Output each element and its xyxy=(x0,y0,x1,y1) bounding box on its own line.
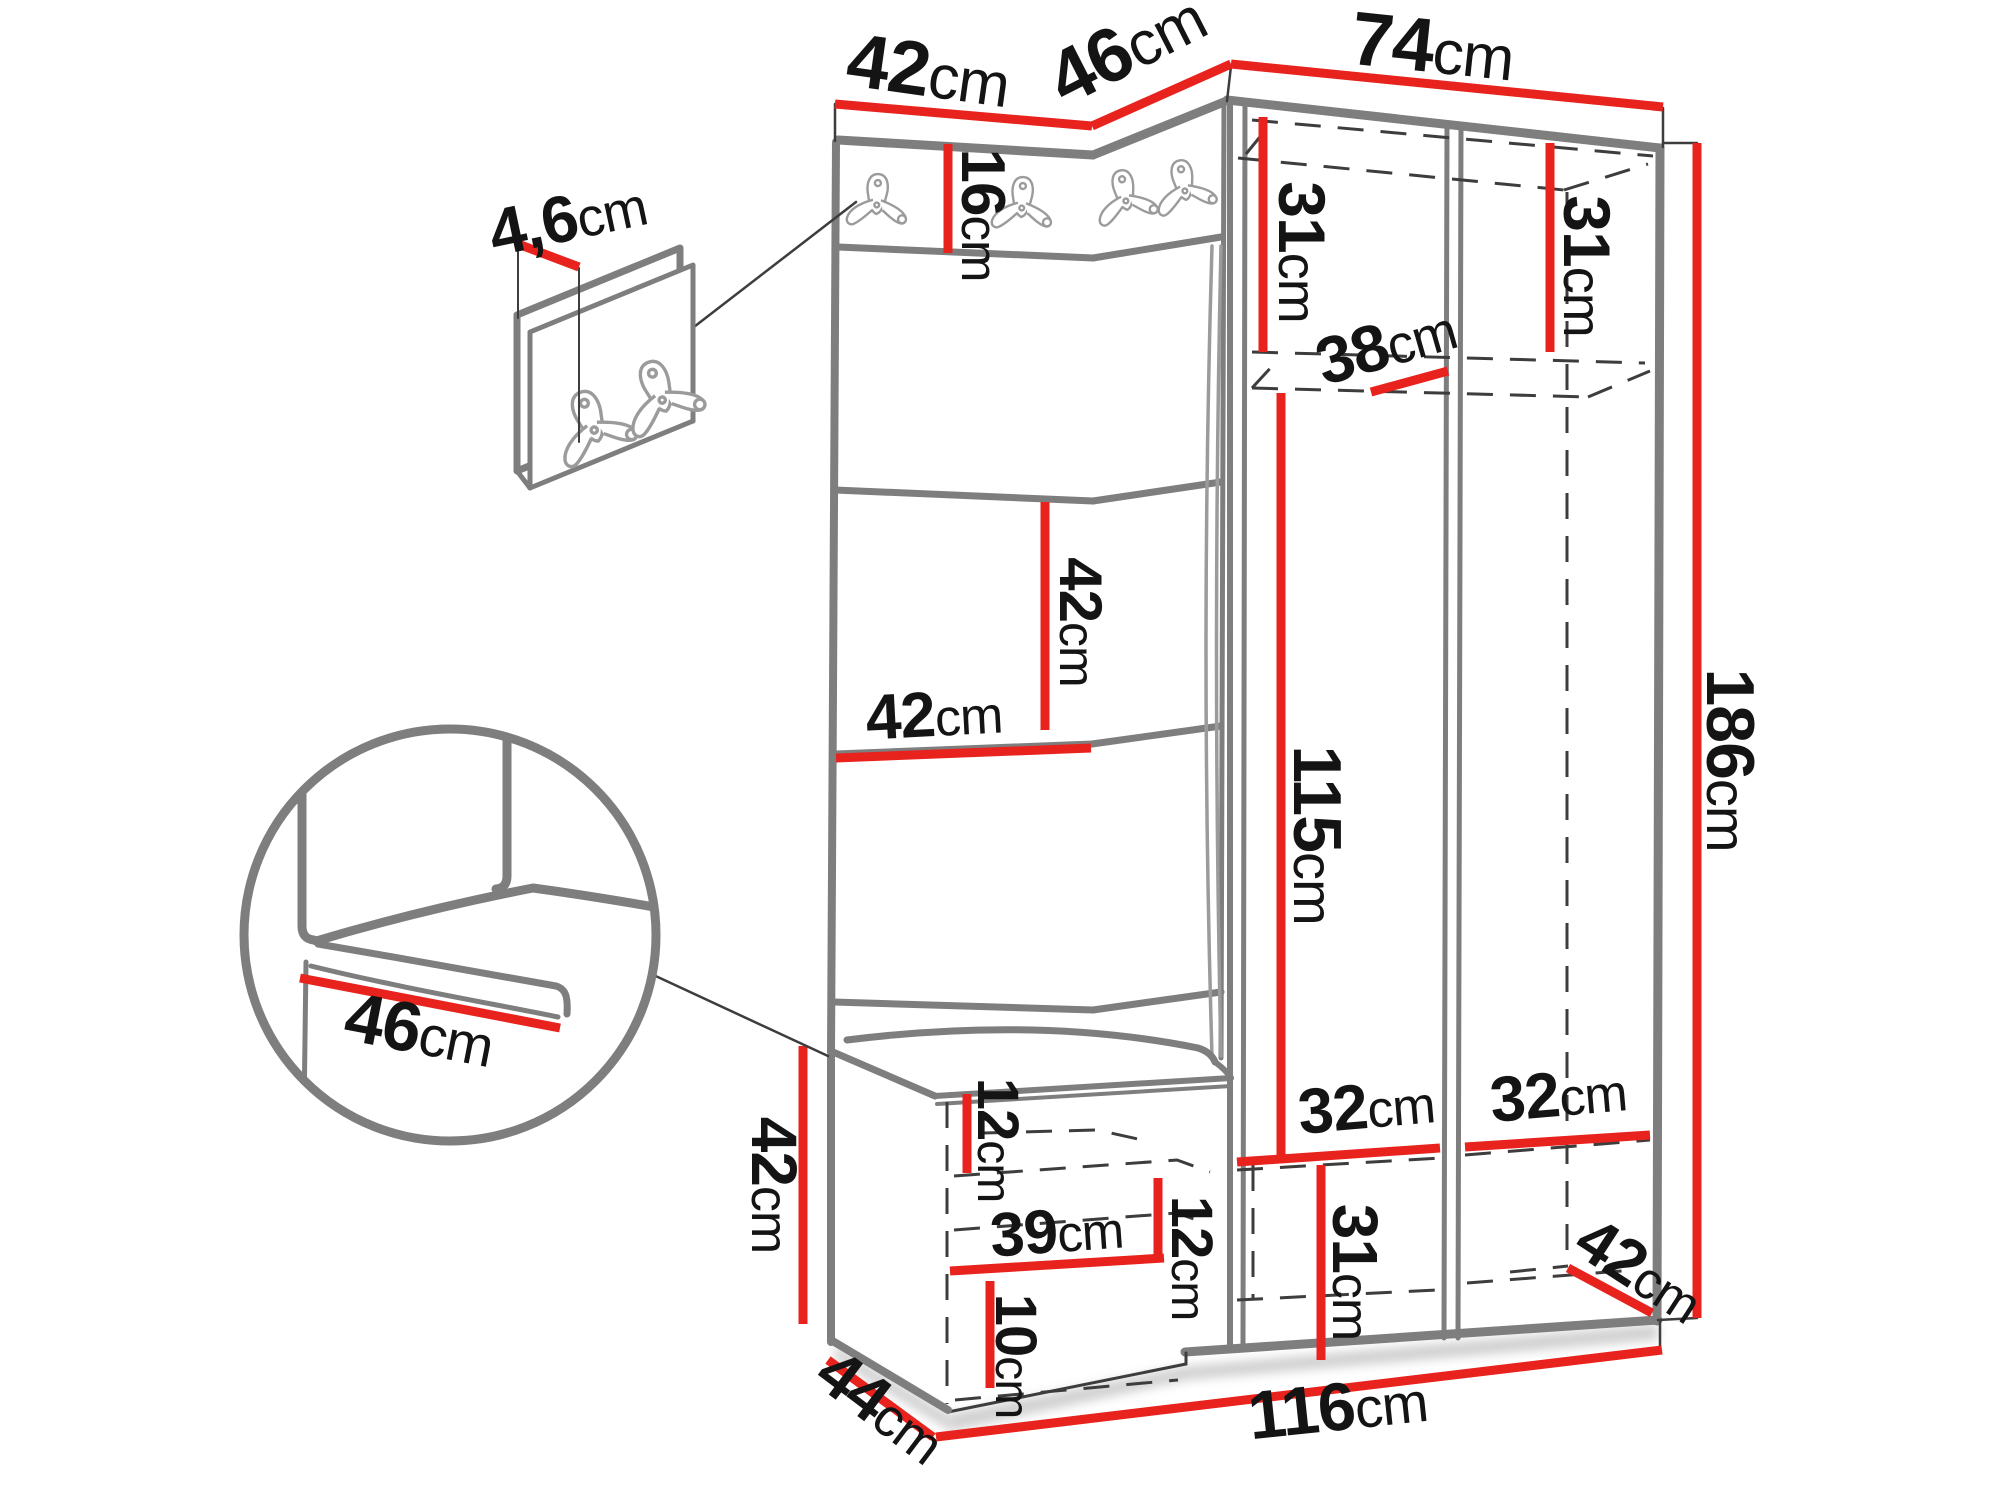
right-front-corner-edge xyxy=(1657,148,1660,1321)
dim-label-top-corner-width: 46cm xyxy=(1034,0,1218,122)
quilt-seam-3-left xyxy=(834,1002,1093,1010)
coat-hook-icon xyxy=(1151,155,1218,216)
dim-label-right-bay-top-height: 31cm xyxy=(1550,195,1624,336)
diagram-canvas: 46cm 42cm 46cm 74cm 4,6cm 16cm 31cm 31cm… xyxy=(0,0,2000,1500)
cushion-back-edge xyxy=(847,1030,1215,1062)
dim-label-panel-tile-height: 42cm xyxy=(1047,557,1114,686)
coat-hook-icon xyxy=(1092,165,1159,226)
dim-label-hook-strip-height: 16cm xyxy=(948,149,1017,282)
dim-line-right-bay-width xyxy=(1465,1135,1650,1147)
dim-label-right-bay-width: 32cm xyxy=(1487,1052,1629,1136)
corner-top-edge xyxy=(1093,102,1224,155)
coat-hook-icon xyxy=(847,173,909,228)
callout-line-seat-detail xyxy=(647,972,828,1056)
dim-label-bottom-section-height: 31cm xyxy=(1319,1204,1391,1341)
quilt-seam-1-left xyxy=(835,490,1093,501)
dashed-floor-back-right xyxy=(1510,1266,1568,1272)
middle-stile-right xyxy=(1458,125,1461,1338)
dim-label-left-bay-top-height: 31cm xyxy=(1265,181,1339,322)
panel-left-edge xyxy=(831,142,836,1052)
dim-label-top-right-width: 74cm xyxy=(1347,0,1518,97)
detail-bench-front-edge xyxy=(304,962,306,1115)
dim-label-total-width: 116cm xyxy=(1244,1360,1430,1454)
dim-label-cushion-thickness: 12cm xyxy=(965,1078,1030,1203)
dashed-hat-shelf-diag xyxy=(1588,371,1650,397)
wardrobe-top-edge xyxy=(1227,100,1660,148)
hook-strip-seam-corner xyxy=(1093,237,1221,258)
dim-label-panel-tile-width: 42cm xyxy=(864,675,1004,754)
dim-label-left-bay-width: 32cm xyxy=(1295,1064,1437,1148)
dashed-hat-shelf-diag-left xyxy=(1252,362,1276,388)
dim-label-bench-lower-height: 10cm xyxy=(983,1294,1048,1419)
quilt-seam-2-corner xyxy=(1092,726,1221,744)
panel-hooks xyxy=(847,155,1218,230)
quilt-seam-3-corner xyxy=(1093,992,1221,1010)
corner-door-edge-outer xyxy=(1206,246,1212,1056)
dim-label-interior-height: 115cm xyxy=(1279,745,1355,924)
dim-label-bench-shelf-width: 39cm xyxy=(988,1192,1125,1270)
seat-detail-inset: 46cm xyxy=(244,700,828,1141)
furniture-dimension-diagram: 46cm 42cm 46cm 74cm 4,6cm 16cm 31cm 31cm… xyxy=(0,0,2000,1500)
cushion-left-edge xyxy=(833,1052,935,1096)
dim-label-shelf-depth: 38cm xyxy=(1307,289,1463,399)
dashed-hat-shelf-bottom xyxy=(1252,388,1588,397)
dim-label-bench-gap-height: 12cm xyxy=(1159,1196,1224,1321)
dim-label-hook-panel-depth: 4,6cm xyxy=(482,165,653,270)
dim-label-total-height: 186cm xyxy=(1692,668,1768,851)
quilt-seam-1-corner xyxy=(1093,482,1221,501)
dashed-top-diag-right xyxy=(1564,164,1648,190)
